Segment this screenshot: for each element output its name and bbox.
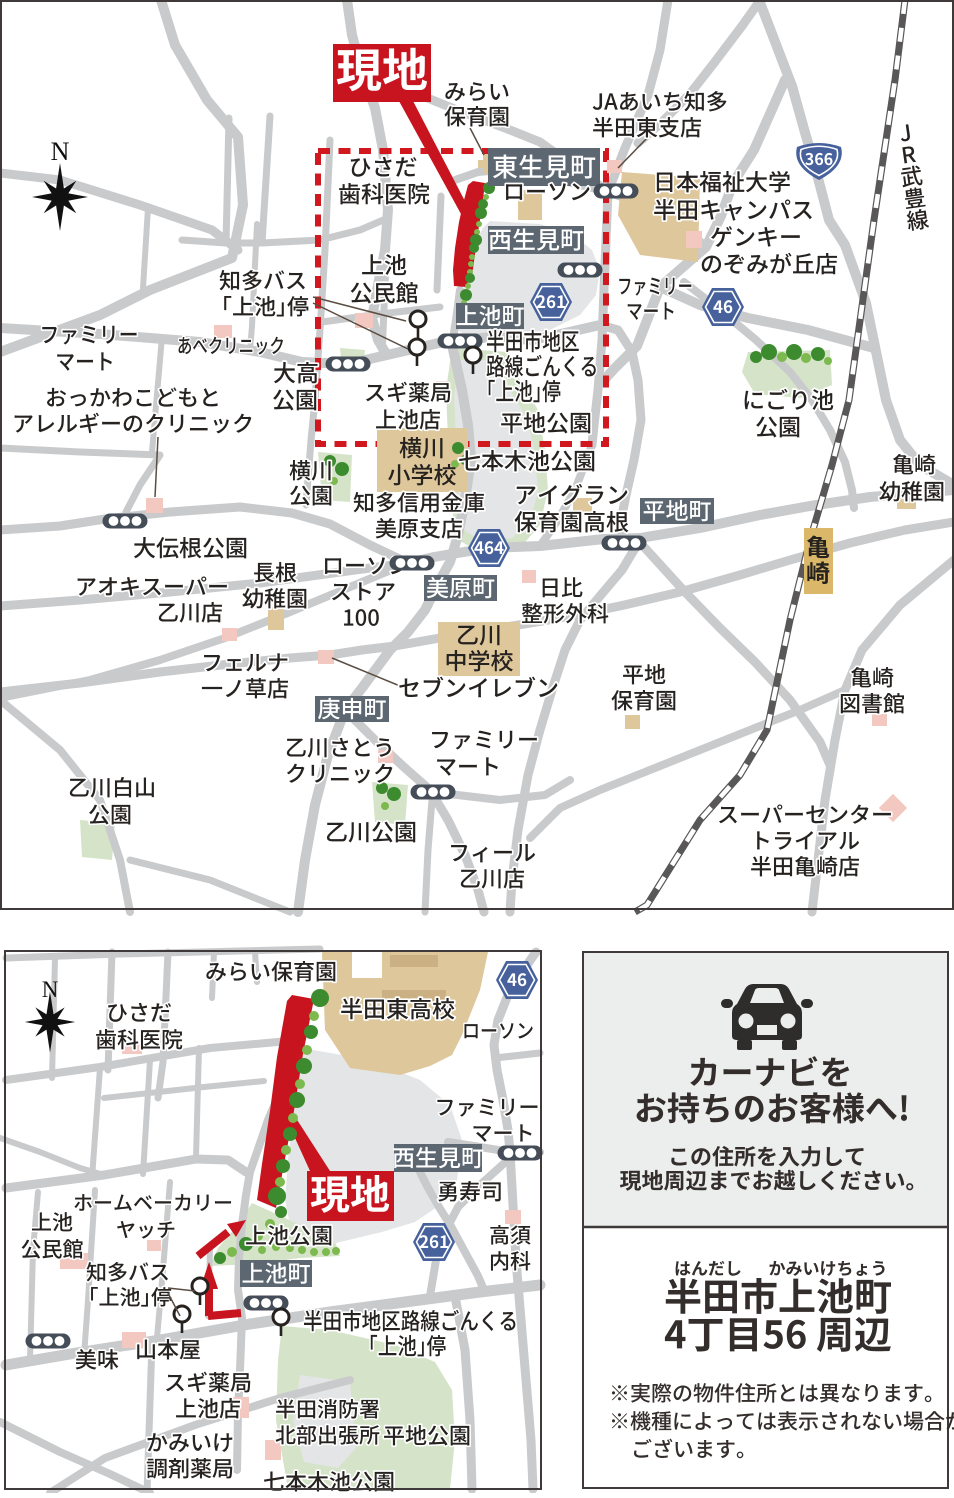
svg-text:N: N	[51, 137, 70, 166]
svg-text:N: N	[42, 977, 59, 1002]
